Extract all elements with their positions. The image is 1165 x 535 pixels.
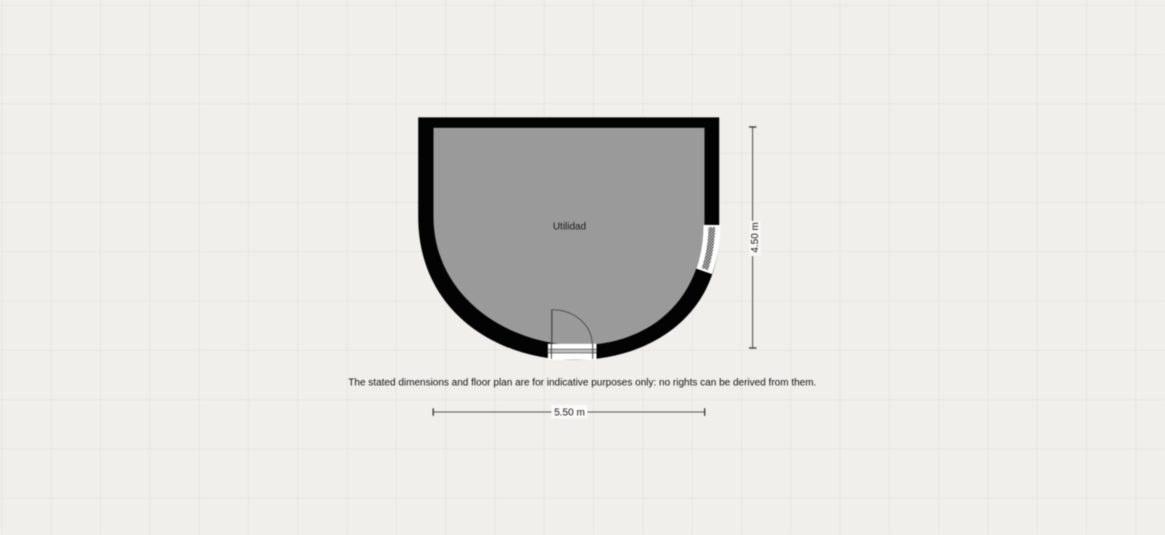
svg-text:4.50 m: 4.50 m [750,222,761,253]
svg-text:Utilidad: Utilidad [553,222,586,233]
svg-text:5.50 m: 5.50 m [554,407,585,418]
svg-text:The stated dimensions and floo: The stated dimensions and floor plan are… [348,378,816,389]
